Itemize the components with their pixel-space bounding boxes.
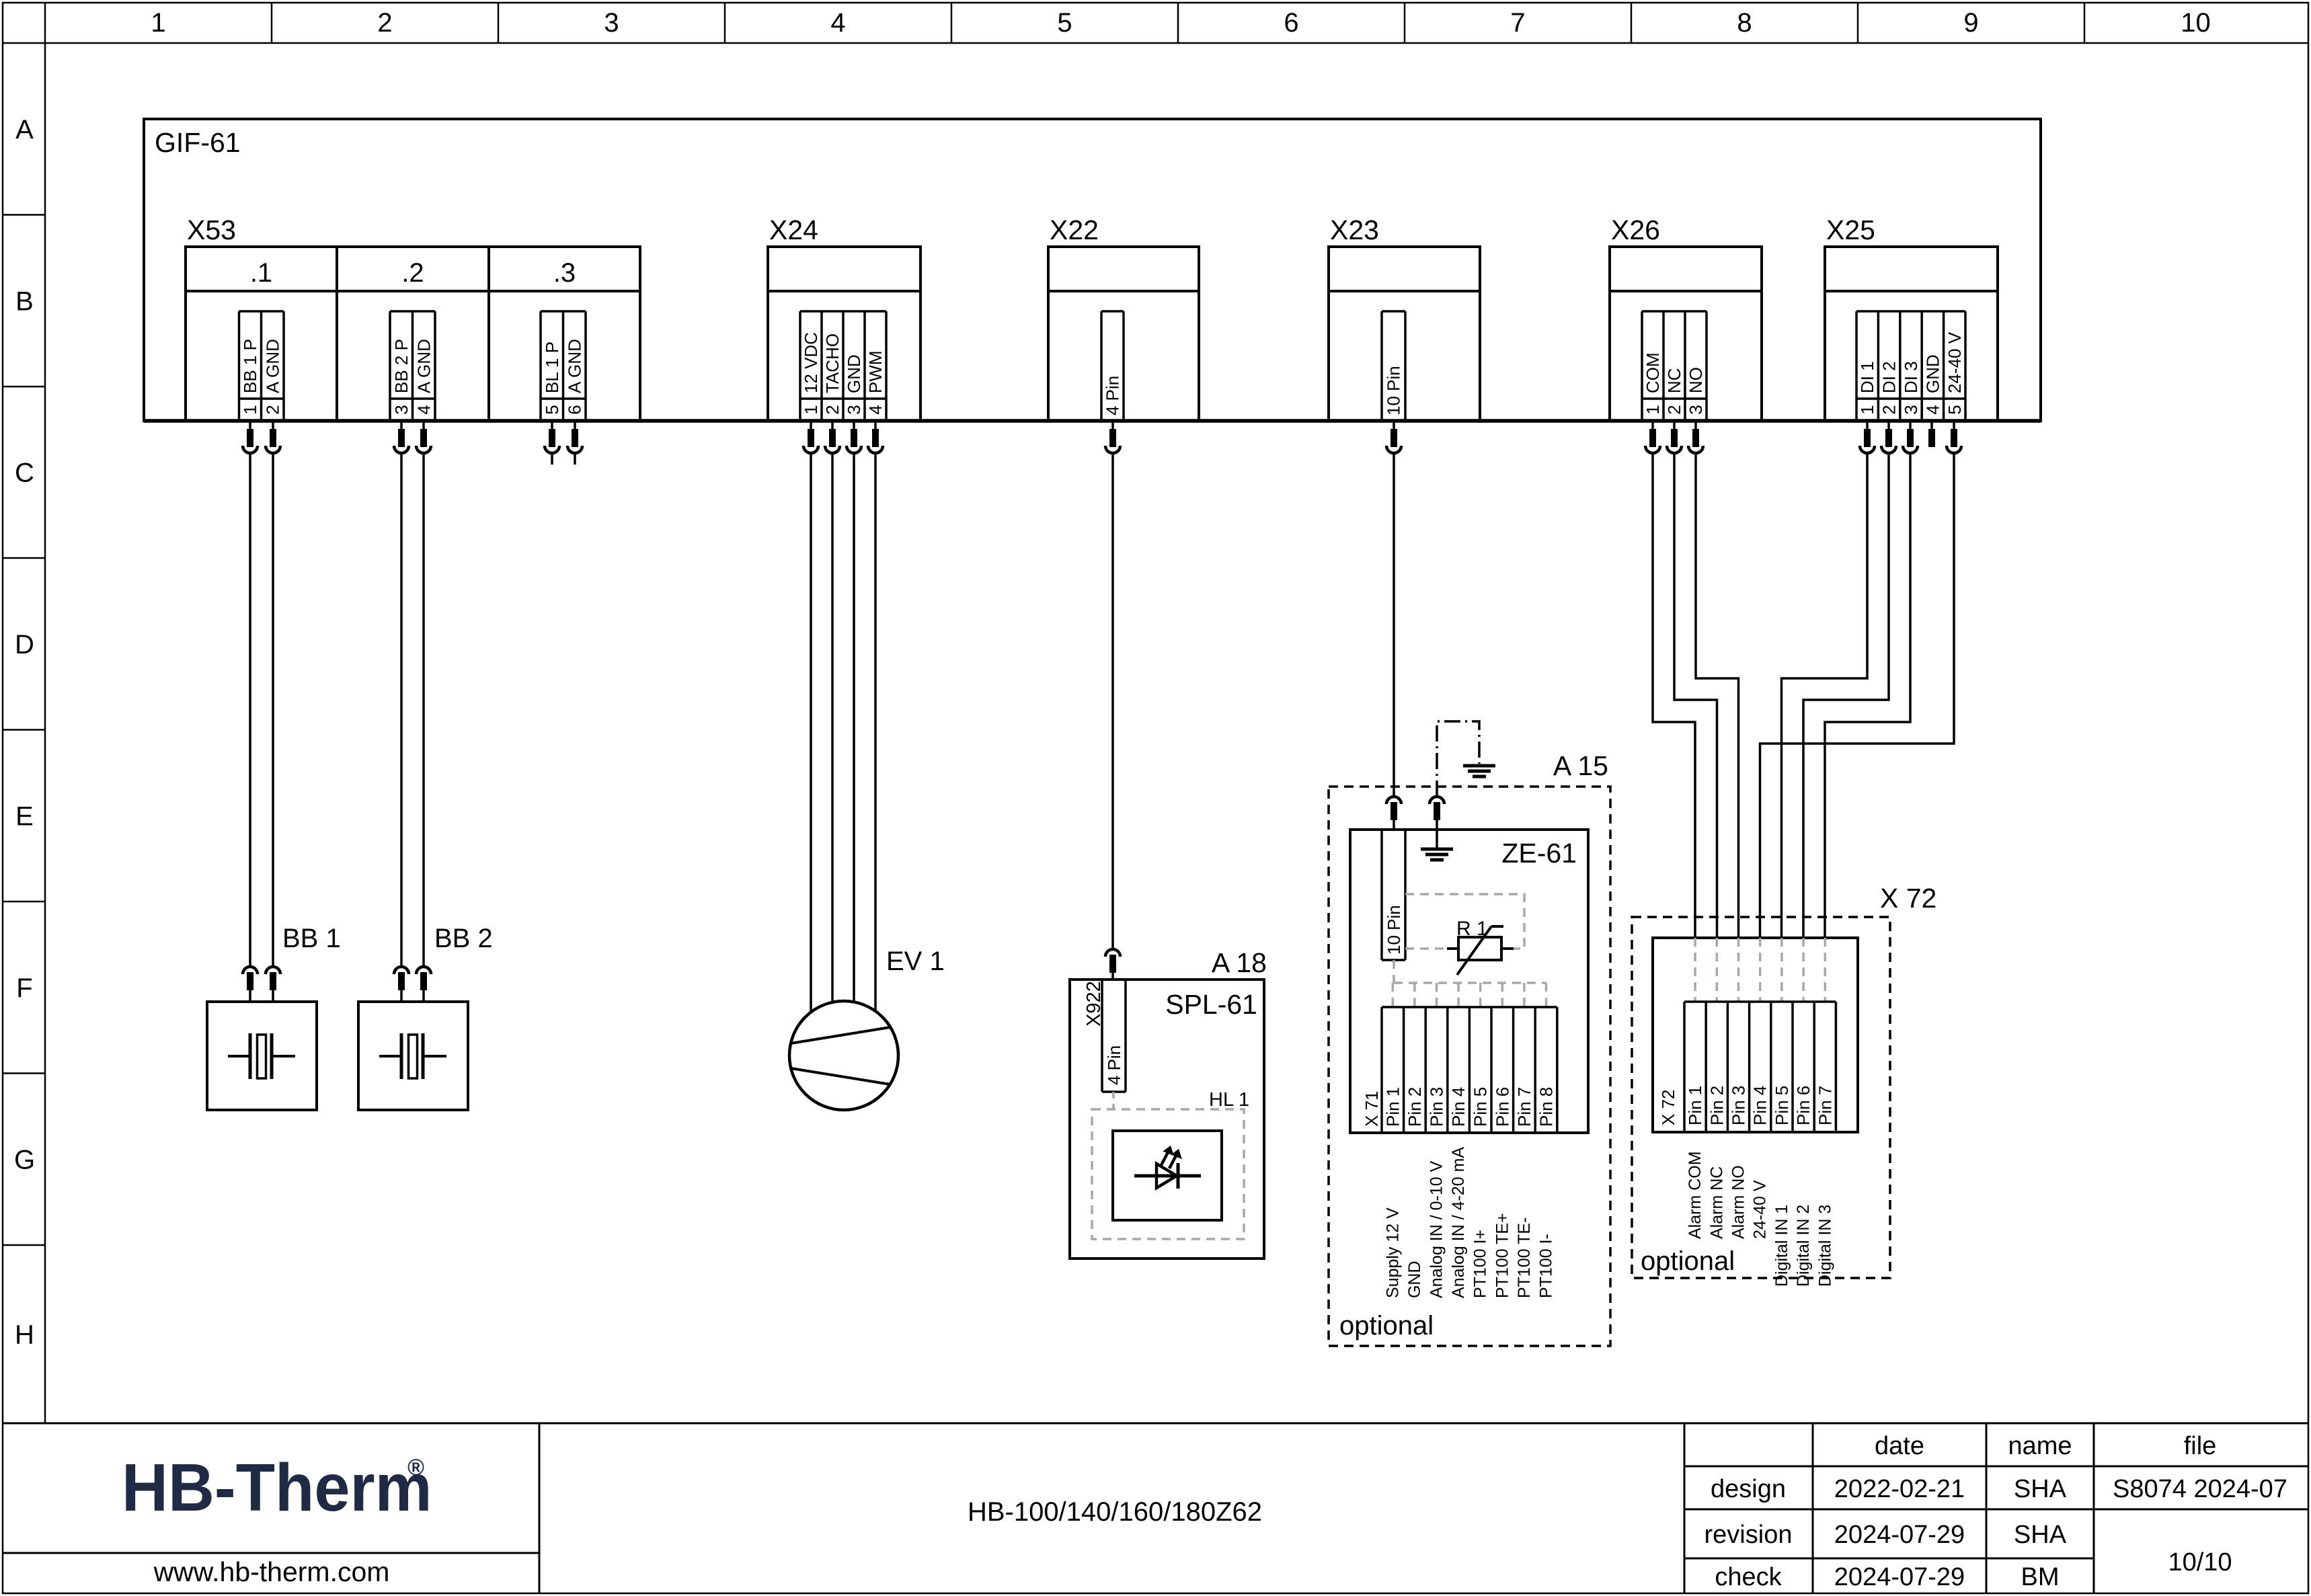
svg-text:2022-02-21: 2022-02-21 [1834, 1475, 1965, 1503]
svg-text:4 Pin: 4 Pin [1104, 1045, 1124, 1085]
svg-text:D: D [15, 630, 34, 660]
svg-text:X 71: X 71 [1362, 1091, 1382, 1127]
svg-text:BL 1 P: BL 1 P [542, 342, 562, 393]
svg-text:Pin 5: Pin 5 [1471, 1087, 1491, 1127]
svg-text:5: 5 [1945, 405, 1965, 414]
svg-text:2: 2 [1664, 405, 1684, 414]
svg-text:1: 1 [1643, 405, 1663, 414]
svg-text:9: 9 [1963, 8, 1978, 38]
svg-text:Alarm COM: Alarm COM [1686, 1151, 1705, 1239]
svg-text:1: 1 [240, 405, 260, 414]
svg-text:S8074 2024-07: S8074 2024-07 [2113, 1475, 2287, 1503]
svg-text:Pin 1: Pin 1 [1685, 1086, 1705, 1125]
svg-text:A: A [15, 115, 34, 145]
svg-text:4 Pin: 4 Pin [1103, 376, 1123, 415]
svg-text:10 Pin: 10 Pin [1384, 905, 1404, 955]
svg-text:1: 1 [801, 405, 821, 414]
svg-text:Pin 6: Pin 6 [1492, 1087, 1512, 1127]
svg-text:1: 1 [1857, 405, 1877, 414]
svg-text:10/10: 10/10 [2168, 1548, 2232, 1577]
svg-text:PT100 I+: PT100 I+ [1471, 1230, 1490, 1298]
svg-text:H: H [15, 1320, 34, 1350]
svg-text:NC: NC [1664, 368, 1684, 393]
svg-text:6: 6 [564, 405, 584, 414]
svg-text:4: 4 [865, 405, 886, 414]
svg-text:BM: BM [2021, 1563, 2060, 1591]
svg-text:GIF-61: GIF-61 [155, 127, 241, 158]
svg-text:6: 6 [1284, 8, 1298, 38]
svg-text:X 72: X 72 [1880, 883, 1936, 914]
svg-text:8: 8 [1737, 8, 1752, 38]
svg-text:X26: X26 [1611, 214, 1660, 245]
svg-text:Alarm NO: Alarm NO [1729, 1165, 1748, 1239]
svg-text:TACHO: TACHO [822, 333, 843, 393]
svg-text:HB-Therm: HB-Therm [122, 1449, 432, 1525]
svg-text:ZE-61: ZE-61 [1501, 838, 1577, 869]
svg-text:revision: revision [1705, 1521, 1793, 1549]
svg-text:name: name [2008, 1432, 2072, 1460]
svg-text:HB-100/140/160/180Z62: HB-100/140/160/180Z62 [968, 1497, 1262, 1527]
svg-text:date: date [1875, 1432, 1924, 1460]
svg-text:10: 10 [2181, 8, 2211, 38]
svg-text:Pin 8: Pin 8 [1536, 1087, 1557, 1127]
svg-text:4: 4 [414, 405, 434, 414]
svg-text:DI 3: DI 3 [1901, 361, 1921, 393]
svg-text:GND: GND [1922, 354, 1943, 393]
svg-text:optional: optional [1339, 1311, 1434, 1341]
svg-text:F: F [16, 973, 32, 1003]
svg-text:5: 5 [542, 405, 562, 414]
svg-text:optional: optional [1641, 1246, 1735, 1276]
svg-text:12 VDC: 12 VDC [801, 332, 821, 393]
svg-text:BB 1: BB 1 [282, 924, 341, 953]
svg-text:GND: GND [1405, 1261, 1424, 1298]
svg-text:DI 1: DI 1 [1857, 361, 1877, 393]
svg-text:Pin 1: Pin 1 [1382, 1087, 1403, 1127]
svg-text:HL 1: HL 1 [1209, 1089, 1249, 1111]
svg-text:.2: .2 [401, 258, 424, 288]
svg-text:SHA: SHA [2014, 1521, 2067, 1549]
svg-text:2: 2 [262, 405, 282, 414]
svg-text:5: 5 [1057, 8, 1072, 38]
svg-text:SHA: SHA [2014, 1475, 2067, 1503]
svg-text:NO: NO [1686, 367, 1706, 393]
svg-text:2: 2 [822, 405, 843, 414]
svg-text:Digital IN 1: Digital IN 1 [1772, 1205, 1791, 1287]
svg-text:3: 3 [1686, 405, 1706, 414]
svg-text:PT100 I-: PT100 I- [1537, 1234, 1556, 1298]
svg-text:7: 7 [1510, 8, 1525, 38]
svg-text:PT100 TE+: PT100 TE+ [1493, 1213, 1512, 1298]
svg-text:X23: X23 [1330, 214, 1379, 245]
svg-text:PT100 TE-: PT100 TE- [1515, 1218, 1534, 1298]
svg-text:PWM: PWM [865, 350, 886, 393]
svg-text:A 15: A 15 [1553, 750, 1608, 781]
svg-text:X25: X25 [1826, 214, 1875, 245]
svg-text:2024-07-29: 2024-07-29 [1834, 1521, 1965, 1549]
svg-text:A GND: A GND [564, 339, 584, 393]
svg-text:X22: X22 [1050, 214, 1099, 245]
svg-text:2: 2 [1879, 405, 1899, 414]
svg-text:4: 4 [1922, 405, 1943, 414]
svg-text:Pin 2: Pin 2 [1707, 1086, 1727, 1125]
svg-text:4: 4 [830, 8, 845, 38]
svg-text:E: E [15, 801, 34, 831]
svg-text:Pin 7: Pin 7 [1514, 1087, 1534, 1127]
svg-text:3: 3 [604, 8, 619, 38]
svg-text:Pin 4: Pin 4 [1448, 1087, 1468, 1127]
svg-text:check: check [1715, 1563, 1782, 1591]
svg-text:SPL-61: SPL-61 [1165, 989, 1257, 1020]
svg-text:3: 3 [1901, 405, 1921, 414]
svg-text:design: design [1711, 1475, 1786, 1503]
svg-text:2024-07-29: 2024-07-29 [1834, 1563, 1965, 1591]
svg-text:®: ® [407, 1455, 424, 1480]
svg-text:www.hb-therm.com: www.hb-therm.com [153, 1556, 390, 1587]
svg-text:COM: COM [1643, 352, 1663, 393]
svg-text:Pin 3: Pin 3 [1729, 1086, 1749, 1125]
svg-text:2: 2 [377, 8, 392, 38]
svg-text:Analog IN / 0-10 V: Analog IN / 0-10 V [1427, 1160, 1446, 1298]
svg-text:Pin 7: Pin 7 [1815, 1086, 1835, 1125]
svg-text:Alarm NC: Alarm NC [1707, 1166, 1726, 1239]
svg-text:Analog IN / 4-20 mA: Analog IN / 4-20 mA [1449, 1147, 1468, 1298]
svg-text:B: B [15, 286, 34, 316]
svg-text:A 18: A 18 [1212, 947, 1267, 978]
svg-text:G: G [14, 1145, 35, 1174]
svg-text:3: 3 [844, 405, 864, 414]
svg-text:X53: X53 [187, 214, 236, 245]
svg-text:X922: X922 [1083, 981, 1105, 1027]
svg-text:GND: GND [844, 354, 864, 393]
svg-text:1: 1 [151, 8, 165, 38]
svg-text:BB 2 P: BB 2 P [391, 339, 412, 393]
svg-text:X24: X24 [769, 214, 818, 245]
svg-text:24-40 V: 24-40 V [1945, 331, 1965, 393]
svg-text:Pin 2: Pin 2 [1405, 1087, 1425, 1127]
svg-text:EV 1: EV 1 [886, 947, 945, 976]
svg-text:24-40 V: 24-40 V [1751, 1180, 1770, 1239]
svg-text:Digital IN 2: Digital IN 2 [1794, 1205, 1813, 1287]
svg-text:Pin 4: Pin 4 [1750, 1086, 1770, 1125]
svg-text:DI 2: DI 2 [1879, 361, 1899, 393]
svg-text:BB 2: BB 2 [434, 924, 493, 953]
svg-text:Pin 6: Pin 6 [1793, 1086, 1813, 1125]
svg-text:Pin 5: Pin 5 [1772, 1086, 1792, 1125]
svg-text:C: C [15, 458, 34, 488]
svg-text:10 Pin: 10 Pin [1384, 366, 1404, 415]
svg-text:X 72: X 72 [1658, 1090, 1678, 1126]
svg-text:A GND: A GND [262, 339, 282, 393]
svg-text:file: file [2184, 1432, 2217, 1460]
svg-text:.1: .1 [250, 258, 272, 288]
svg-text:3: 3 [391, 405, 412, 414]
svg-text:Supply 12 V: Supply 12 V [1383, 1207, 1402, 1298]
svg-text:A GND: A GND [414, 339, 434, 393]
svg-text:.3: .3 [553, 258, 576, 288]
svg-text:Pin 3: Pin 3 [1427, 1087, 1447, 1127]
svg-text:BB 1 P: BB 1 P [240, 339, 260, 393]
svg-text:Digital IN 3: Digital IN 3 [1815, 1205, 1834, 1287]
